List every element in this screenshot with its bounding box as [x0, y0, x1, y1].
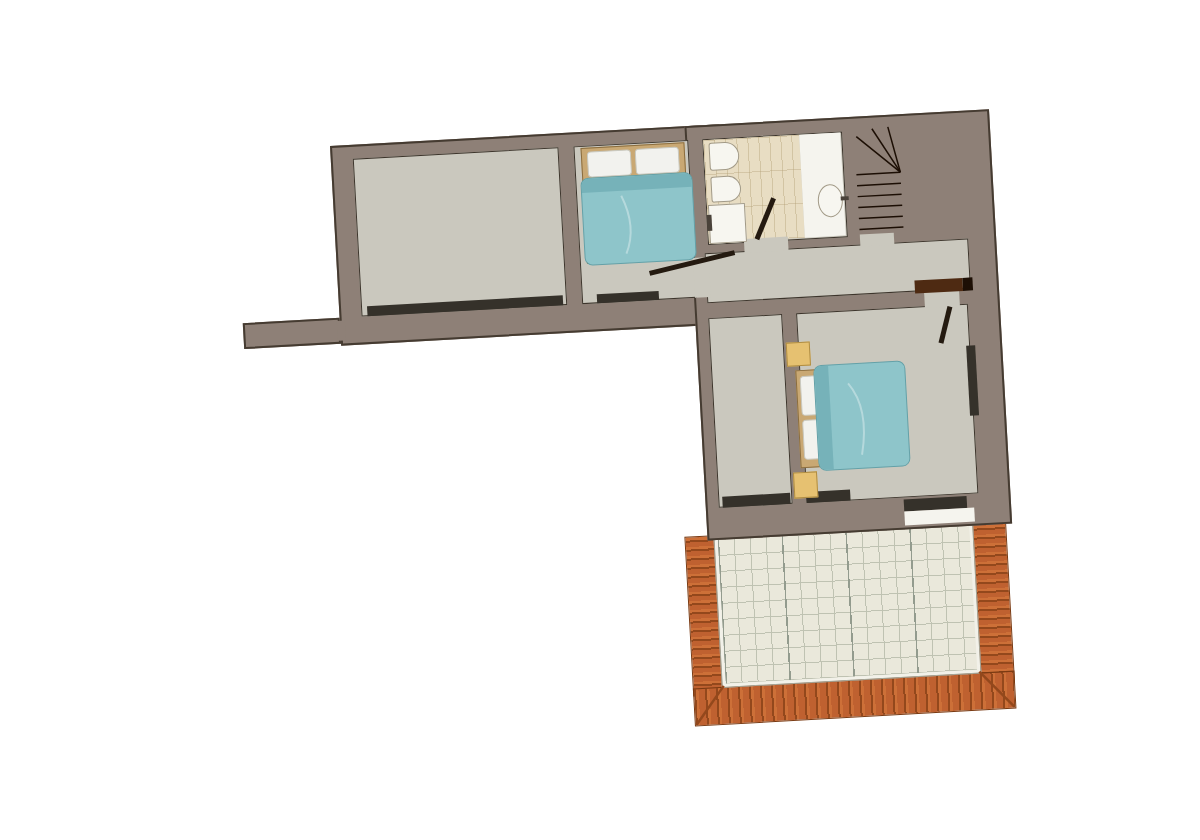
bed1-duvet [580, 172, 697, 266]
bed2-duvet [813, 360, 911, 471]
garden-wall-stub [243, 318, 341, 349]
shower-faucet-icon [706, 215, 712, 231]
hallway-end-shelf-dark [962, 277, 973, 291]
floor-plan [230, 109, 1032, 751]
bed1-pillow-right [635, 147, 680, 175]
doorway-stairs [860, 233, 895, 247]
hallway-end-shelf [914, 278, 963, 294]
nightstand-bottom [793, 471, 818, 498]
doorway-bedroom1-hallway [693, 257, 711, 298]
bathroom-white-floor [799, 133, 846, 238]
room-living [353, 147, 567, 316]
room-closet [708, 314, 792, 508]
terrace-floor [714, 521, 980, 687]
doorway-bathroom [744, 237, 789, 253]
stub-junction-patch [337, 320, 346, 340]
bed2-duvet-roll [814, 366, 834, 471]
floor-plan-page: { "palette": { "bg": "#ffffff", "wall": … [0, 0, 1200, 840]
washbasin-tap-icon [841, 196, 849, 200]
nightstand-top [786, 342, 811, 367]
shower-tray [708, 203, 747, 244]
bed1-pillow-left [587, 149, 632, 177]
